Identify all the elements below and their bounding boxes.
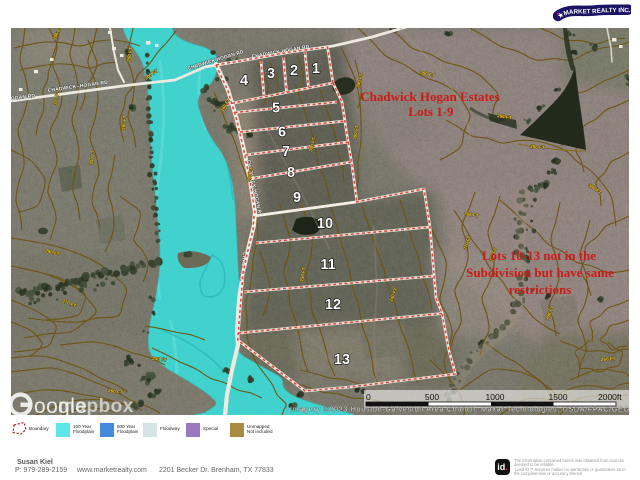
svg-text:1: 1 [312, 61, 320, 77]
svg-text:296 FT: 296 FT [530, 144, 545, 150]
svg-text:9: 9 [293, 190, 301, 206]
svg-text:13: 13 [334, 352, 350, 368]
svg-text:500: 500 [425, 392, 439, 402]
svg-text:restrictions: restrictions [509, 282, 572, 297]
svg-text:12: 12 [325, 297, 341, 313]
svg-text:10: 10 [317, 216, 333, 232]
svg-text:11: 11 [320, 257, 335, 273]
svg-text:4: 4 [240, 73, 248, 89]
svg-text:260 FT: 260 FT [601, 356, 616, 362]
svg-text:8: 8 [287, 165, 295, 181]
svg-text:7: 7 [282, 144, 290, 160]
svg-text:3: 3 [267, 66, 275, 82]
svg-text:0: 0 [366, 392, 371, 402]
svg-text:Chadwick Hogan Estates: Chadwick Hogan Estates [360, 89, 499, 104]
svg-text:Lots 10-13 not in the: Lots 10-13 not in the [482, 248, 596, 263]
svg-text:2000ft: 2000ft [598, 392, 622, 402]
svg-text:1500: 1500 [549, 392, 568, 402]
svg-text:oogle: oogle [34, 395, 87, 415]
svg-text:6: 6 [278, 125, 286, 141]
svg-text:5: 5 [272, 101, 280, 117]
svg-text:Subdivision but have same: Subdivision but have same [466, 265, 614, 280]
svg-text:2: 2 [290, 63, 298, 79]
svg-text:Lots 1-9: Lots 1-9 [408, 104, 454, 119]
svg-text:Imagery ©2023 Houston-Galvesto: Imagery ©2023 Houston-Galveston Area Cou… [290, 406, 629, 414]
svg-text:1000: 1000 [486, 392, 505, 402]
